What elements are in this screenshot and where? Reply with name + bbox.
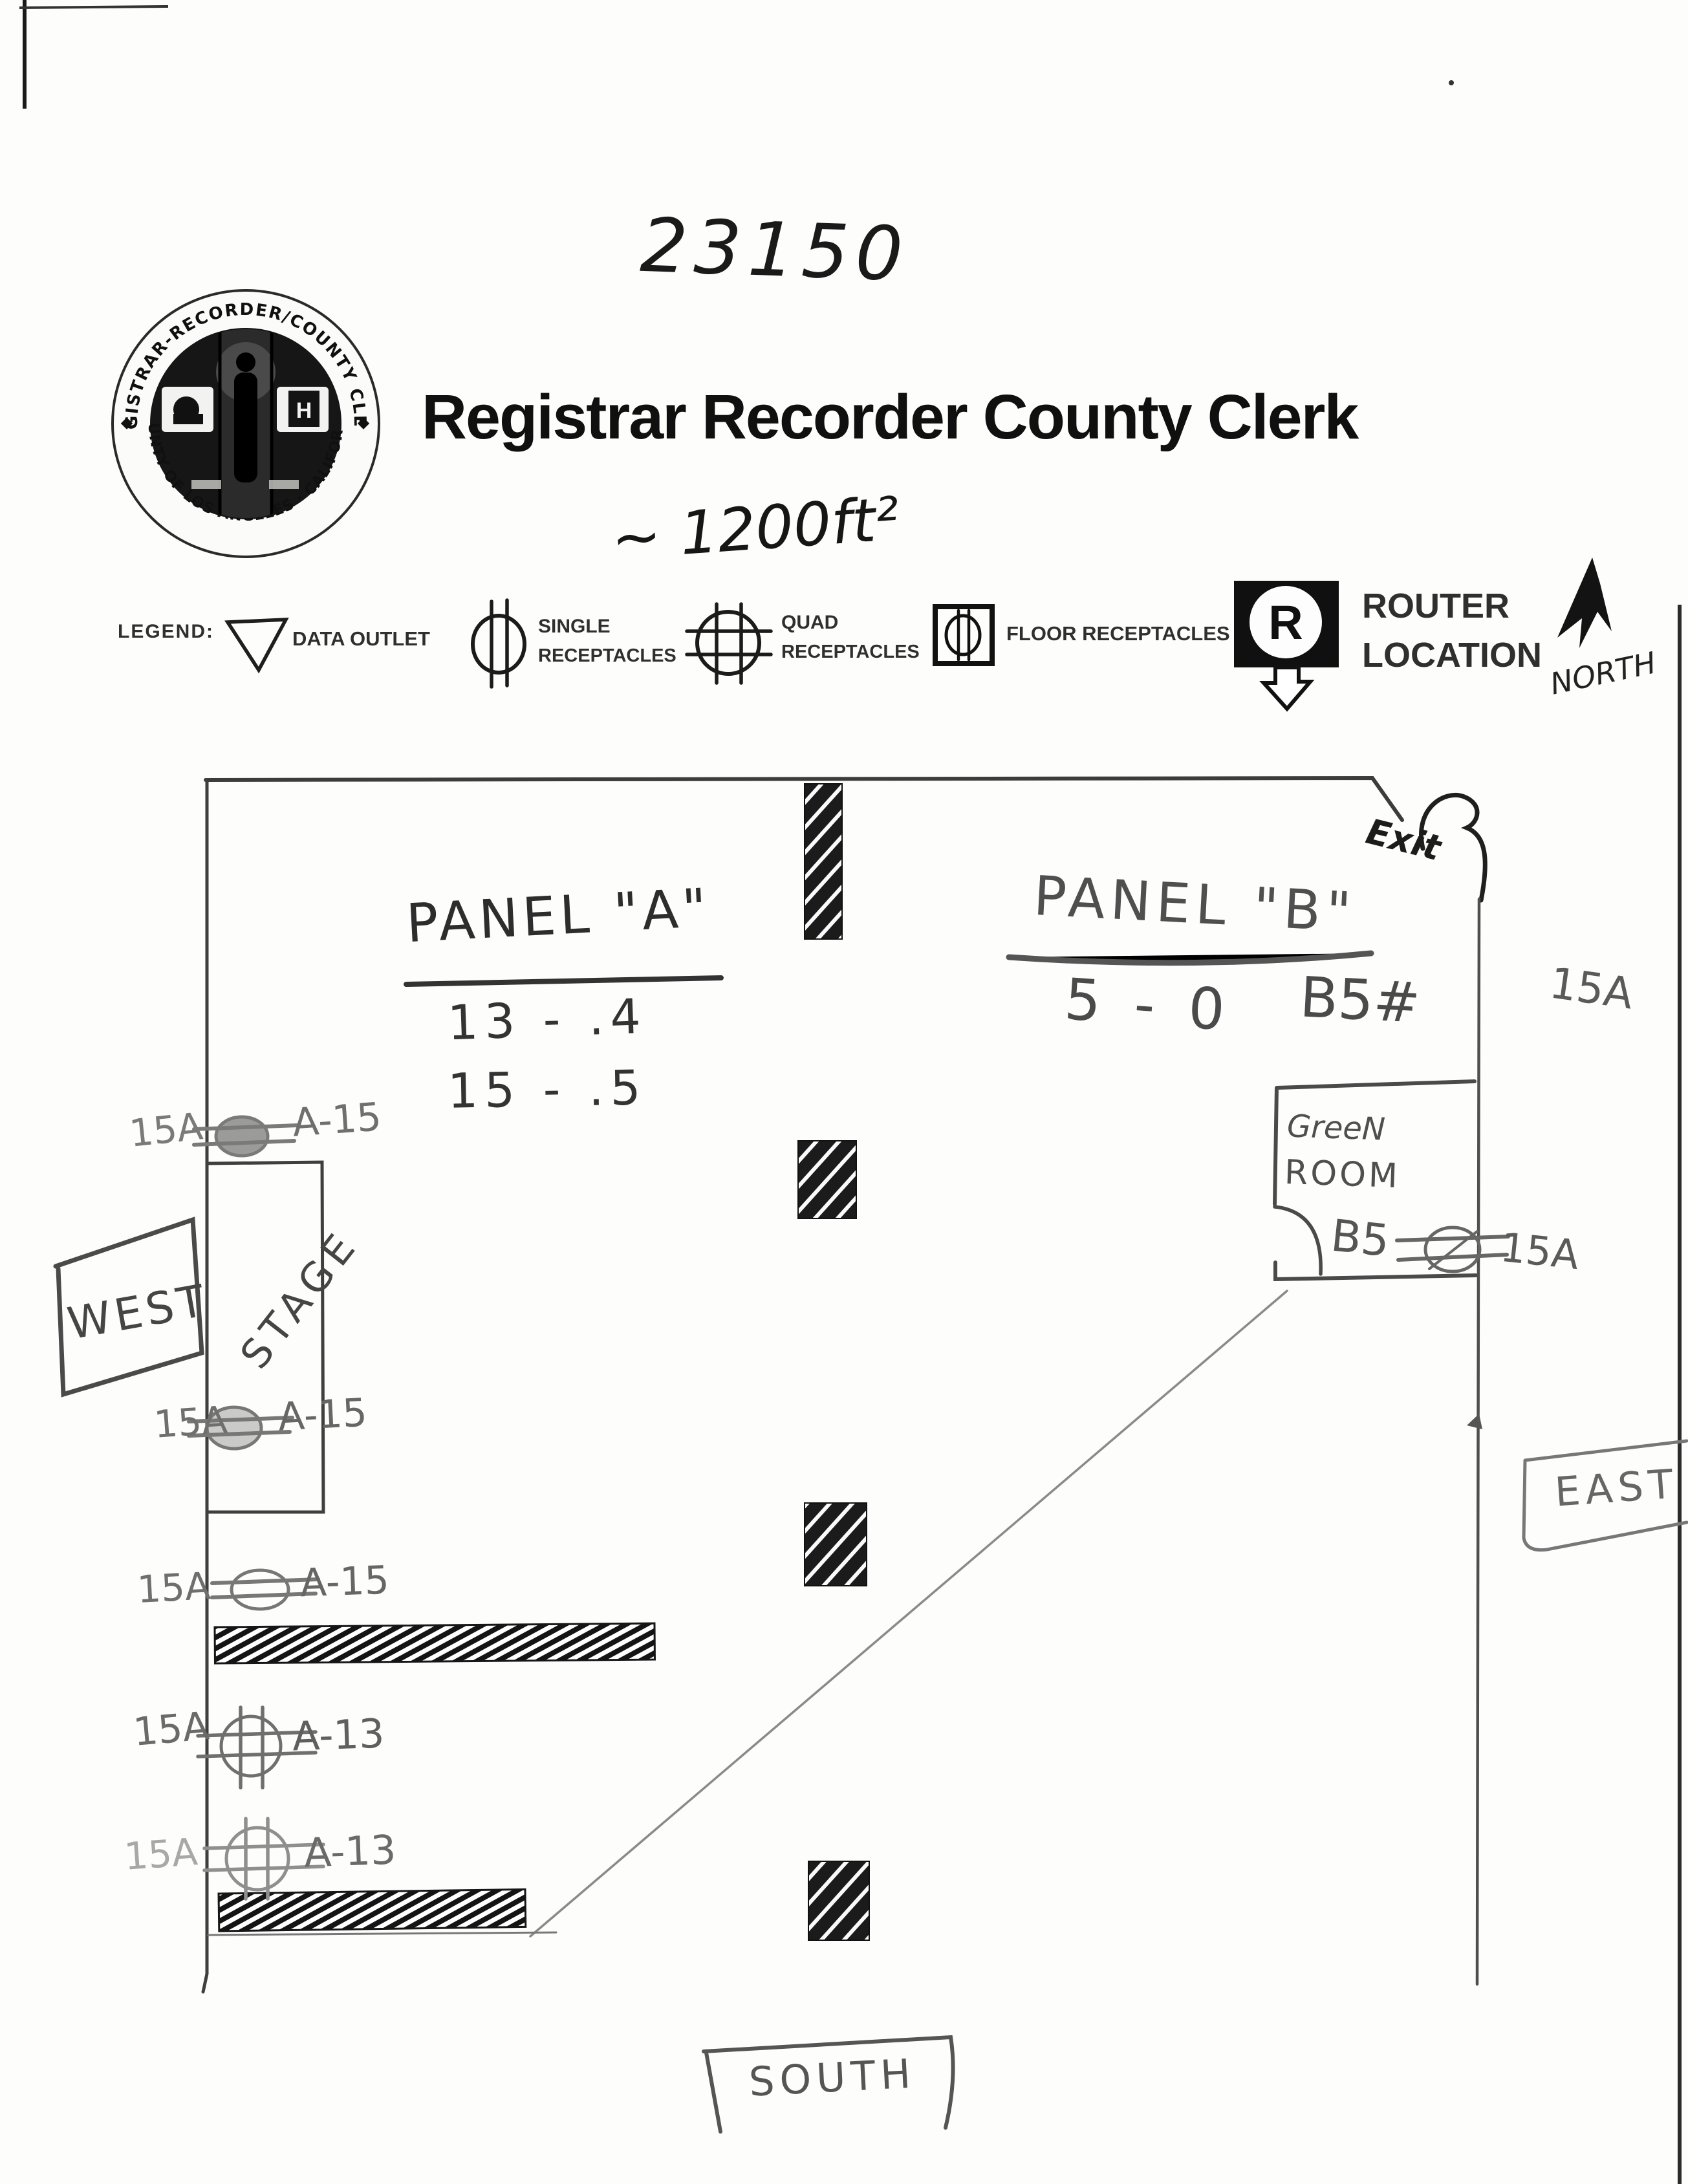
panel-a-row2: 15 - .5 (447, 1064, 647, 1115)
router-down-arrow-icon (1264, 667, 1310, 709)
receptacle-symbol-1 (194, 1117, 298, 1156)
column-4 (808, 1861, 869, 1940)
green-room-note-suffix: 15A (1499, 1227, 1581, 1275)
outlet-3-circuit: A-15 (299, 1561, 390, 1603)
outlet-4-amp: 15A (132, 1707, 211, 1752)
panel-a-row1: 13 - .4 (447, 993, 648, 1048)
outlet-5-circuit: A-13 (303, 1830, 396, 1874)
job-number: 23150 (639, 209, 911, 292)
green-room-note-prefix: B5 (1329, 1214, 1392, 1264)
seal-monogram: H (296, 398, 312, 423)
panel-b-row3: 15A (1547, 962, 1636, 1015)
green-room-receptacle-symbol (1397, 1227, 1508, 1271)
north-arrow-icon (1557, 557, 1612, 648)
column-1 (805, 784, 842, 939)
east-wall (1477, 899, 1479, 1984)
single-receptacle-icon (473, 600, 525, 687)
floor-receptacle-icon (935, 607, 992, 664)
east-label: EAST (1553, 1464, 1680, 1512)
south-floor-line (208, 1932, 556, 1935)
green-room-label-1: GreeN (1286, 1110, 1385, 1145)
legend-floor-label: FLOOR RECEPTACLES (1006, 623, 1230, 643)
direction-boxes (56, 1220, 1687, 2132)
data-outlet-triangle-icon (228, 620, 286, 670)
panel-b-underline (1009, 953, 1371, 963)
panel-b-row2: B5# (1299, 969, 1422, 1032)
legend-router-label-2: LOCATION (1362, 638, 1542, 673)
legend-quad-label-2: RECEPTACLES (781, 643, 920, 662)
legend-single-label-1: SINGLE (538, 617, 611, 636)
legend-heading: LEGEND: (118, 622, 214, 642)
column-3 (805, 1503, 867, 1586)
panel-a-title: PANEL "A" (405, 882, 711, 951)
legend-data-outlet-label: DATA OUTLET (292, 629, 430, 649)
quad-receptacle-icon (687, 604, 771, 683)
hatched-bar-2 (219, 1889, 526, 1931)
outlet-1-amp: 15A (127, 1107, 204, 1152)
green-room-door-arc (1275, 1207, 1321, 1274)
router-letter: R (1268, 596, 1303, 649)
south-label: SOUTH (748, 2053, 917, 2102)
router-location-icon: R (1234, 581, 1339, 709)
outlet-1-circuit: A-15 (291, 1097, 383, 1142)
diagonal-line (530, 1291, 1287, 1936)
panel-a-underline (406, 978, 721, 984)
legend-quad-label-1: QUAD (781, 613, 838, 632)
outlet-2-circuit: A-15 (277, 1393, 369, 1436)
outlet-2-amp: 15A (153, 1401, 228, 1443)
green-room-label-2: ROOM (1284, 1156, 1401, 1193)
column-2 (798, 1141, 856, 1218)
outlet-5-amp: 15A (123, 1833, 199, 1876)
floor-features (215, 784, 869, 1940)
east-wall-arrowhead (1467, 1414, 1482, 1429)
outlet-4-circuit: A-13 (292, 1714, 385, 1757)
hatched-bar-1 (215, 1623, 655, 1663)
scanned-floor-plan-page: REGISTRAR-RECORDER/COUNTY CLERK COUNTY O… (0, 0, 1688, 2184)
page-title: Registrar Recorder County Clerk (422, 385, 1358, 448)
west-wall (203, 780, 207, 1992)
floor-plan-drawing: REGISTRAR-RECORDER/COUNTY CLERK COUNTY O… (0, 0, 1688, 2184)
panel-b-title: PANEL "B" (1032, 869, 1358, 940)
legend-router-label-1: ROUTER (1362, 589, 1509, 623)
panel-b-row1: 5 - 0 (1063, 971, 1234, 1039)
county-seal: REGISTRAR-RECORDER/COUNTY CLERK COUNTY O… (0, 0, 379, 557)
outlet-3-amp: 15A (136, 1567, 211, 1608)
legend-single-label-2: RECEPTACLES (538, 647, 676, 665)
legend-symbols: R (228, 557, 1612, 709)
